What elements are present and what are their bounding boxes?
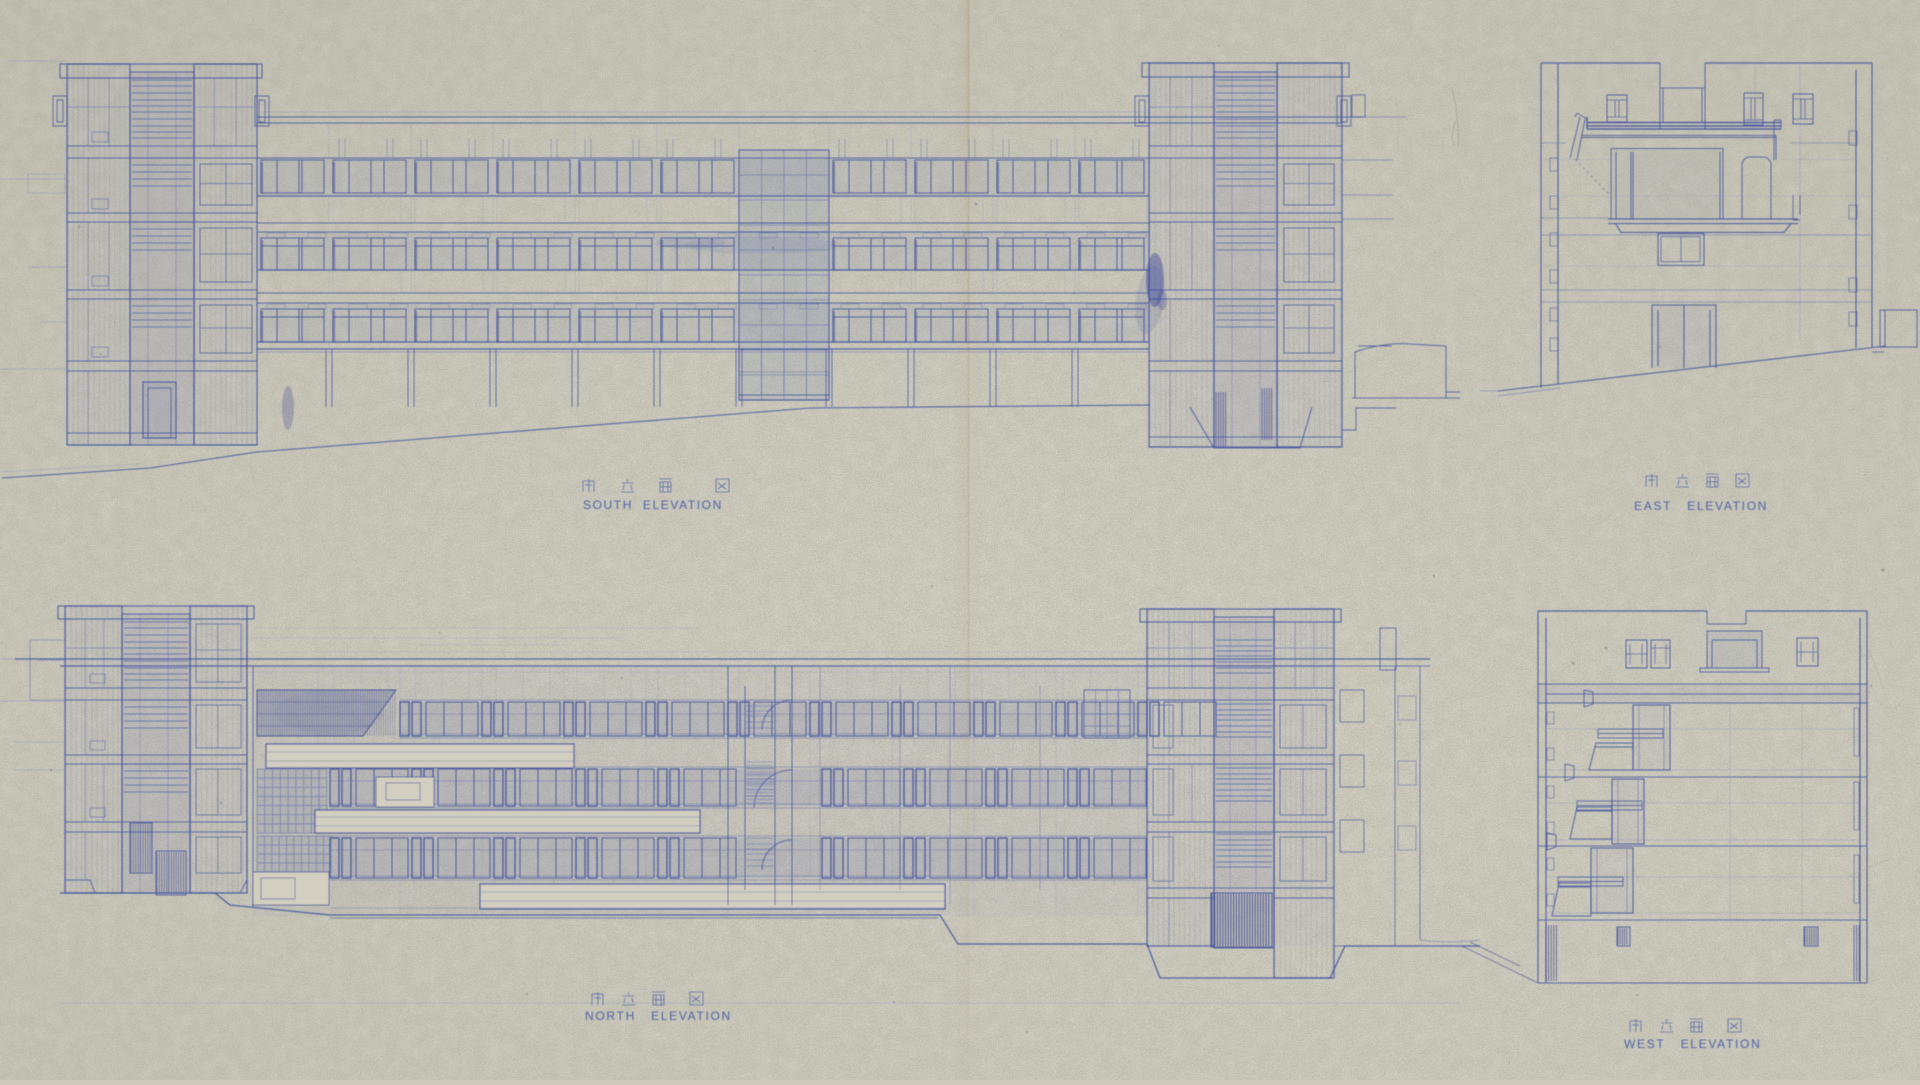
svg-text:NORTH ELEVATION: NORTH ELEVATION (585, 1009, 732, 1023)
svg-text:EAST ELEVATION: EAST ELEVATION (1634, 499, 1768, 513)
svg-text:WEST ELEVATION: WEST ELEVATION (1624, 1037, 1761, 1051)
svg-text:SOUTH ELEVATION: SOUTH ELEVATION (583, 498, 723, 512)
